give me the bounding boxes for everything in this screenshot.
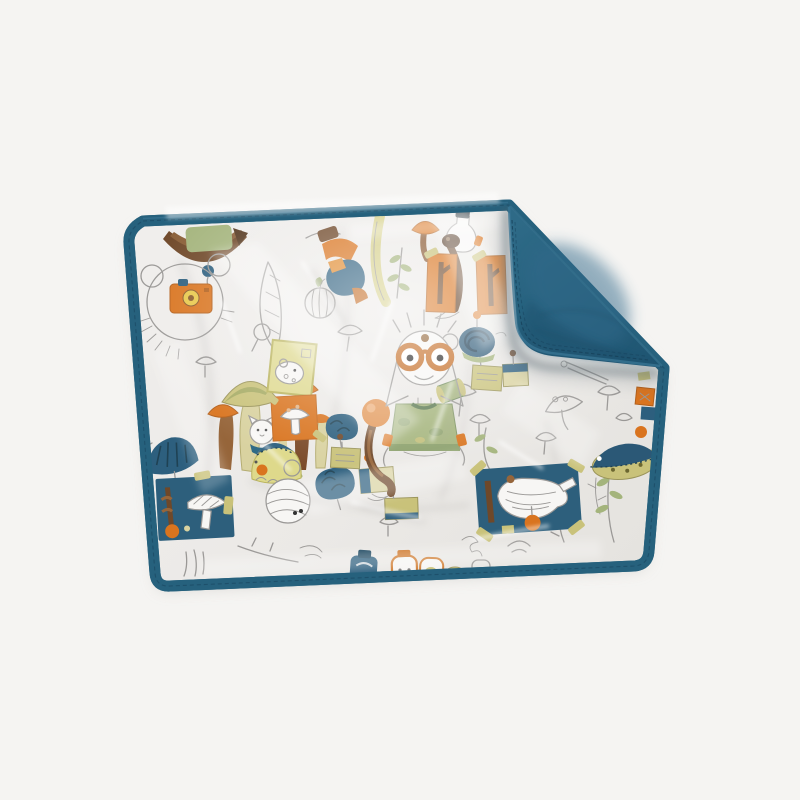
changing-mat-photo	[0, 0, 800, 800]
folded-corner	[506, 205, 664, 368]
product-photo-stage	[0, 0, 800, 800]
